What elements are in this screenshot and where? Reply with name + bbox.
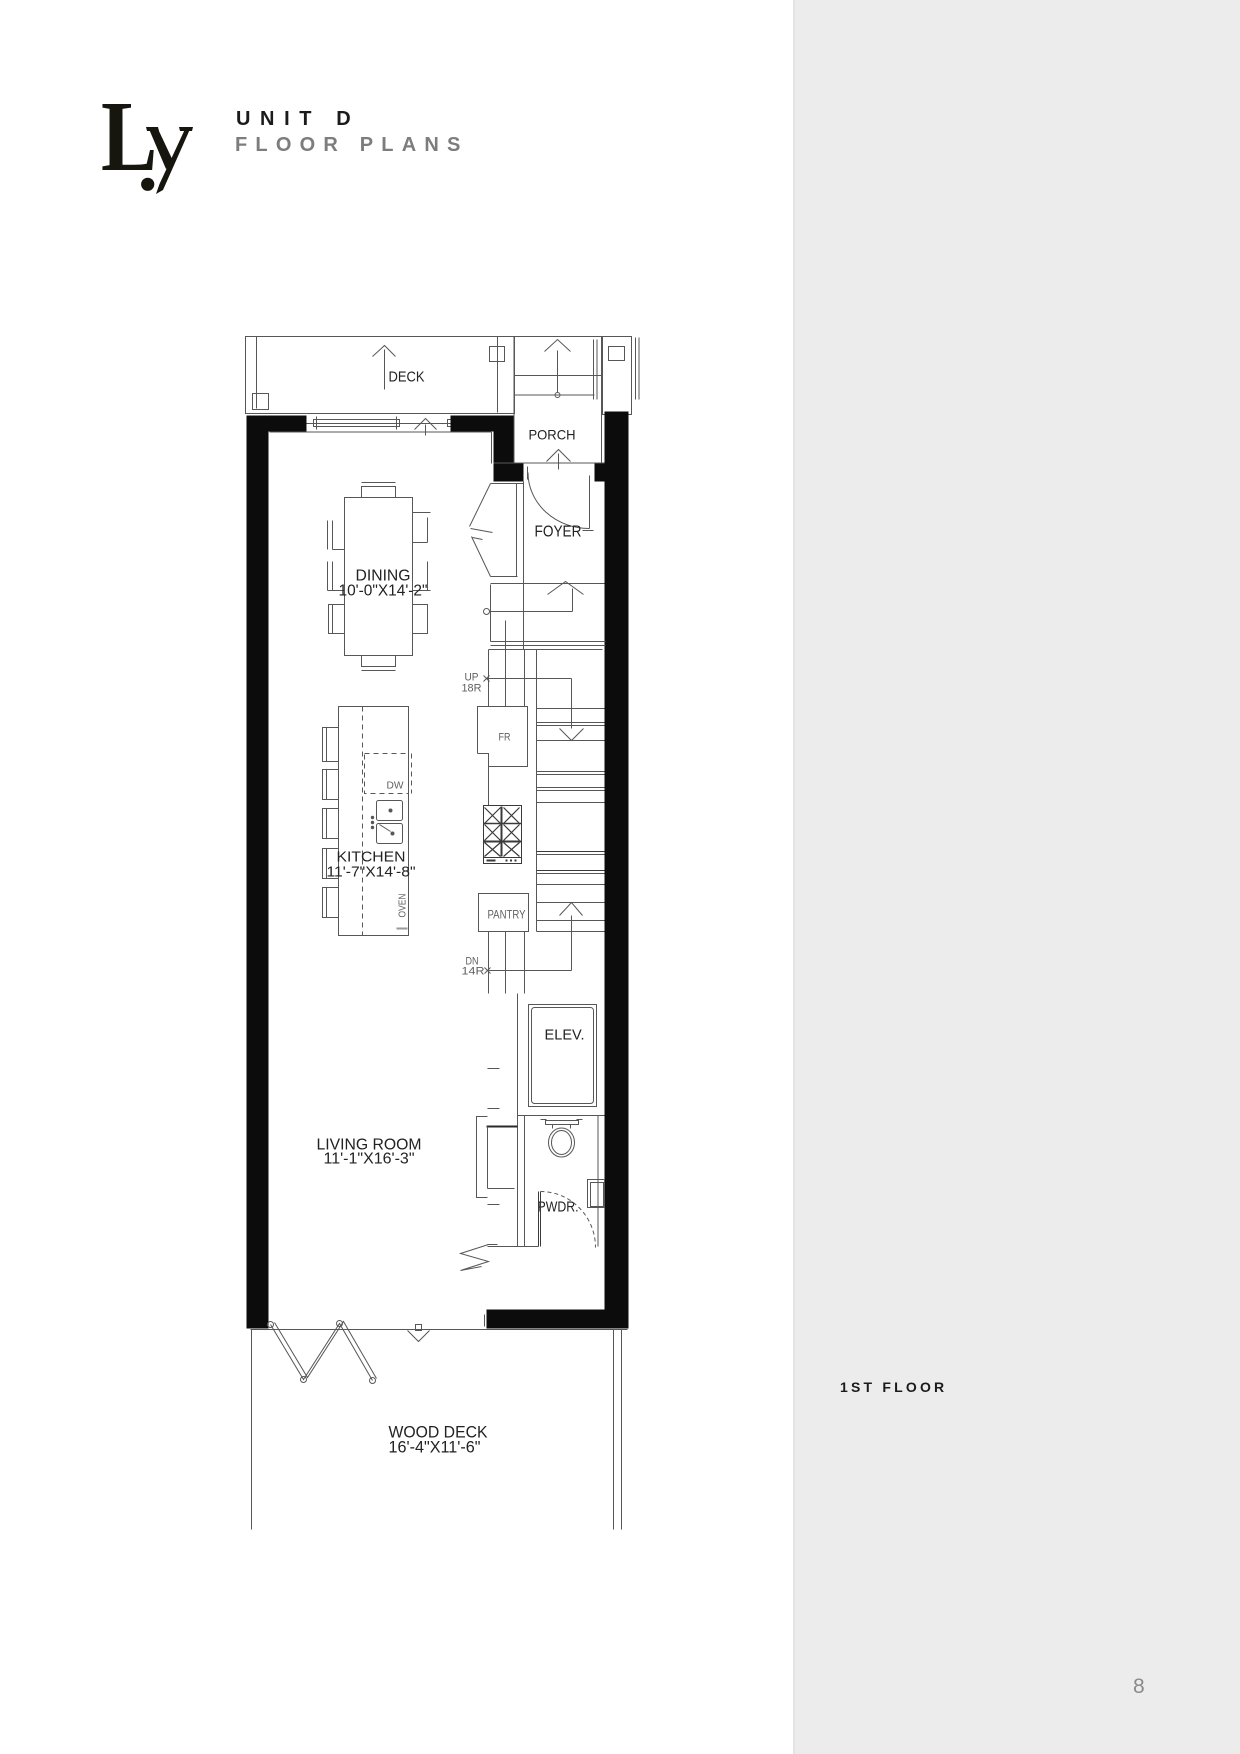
svg-text:18R: 18R [462, 683, 482, 695]
svg-text:DECK: DECK [389, 369, 425, 386]
svg-text:FOYER: FOYER [535, 524, 582, 541]
svg-text:DW: DW [387, 781, 405, 792]
svg-text:ELEV.: ELEV. [545, 1027, 585, 1044]
svg-text:OVEN: OVEN [398, 894, 409, 918]
svg-text:10'-0"X14'-2": 10'-0"X14'-2" [339, 583, 428, 600]
svg-text:14R: 14R [462, 966, 485, 978]
svg-text:11'-1"X16'-3": 11'-1"X16'-3" [324, 1151, 415, 1168]
svg-text:PORCH: PORCH [529, 427, 576, 443]
svg-text:FR: FR [499, 732, 511, 744]
svg-text:PANTRY: PANTRY [488, 910, 526, 922]
svg-text:11'-7"X14'-8": 11'-7"X14'-8" [327, 864, 416, 881]
svg-text:16'-4"X11'-6": 16'-4"X11'-6" [389, 1439, 481, 1457]
svg-text:PWDR.: PWDR. [538, 1199, 579, 1216]
